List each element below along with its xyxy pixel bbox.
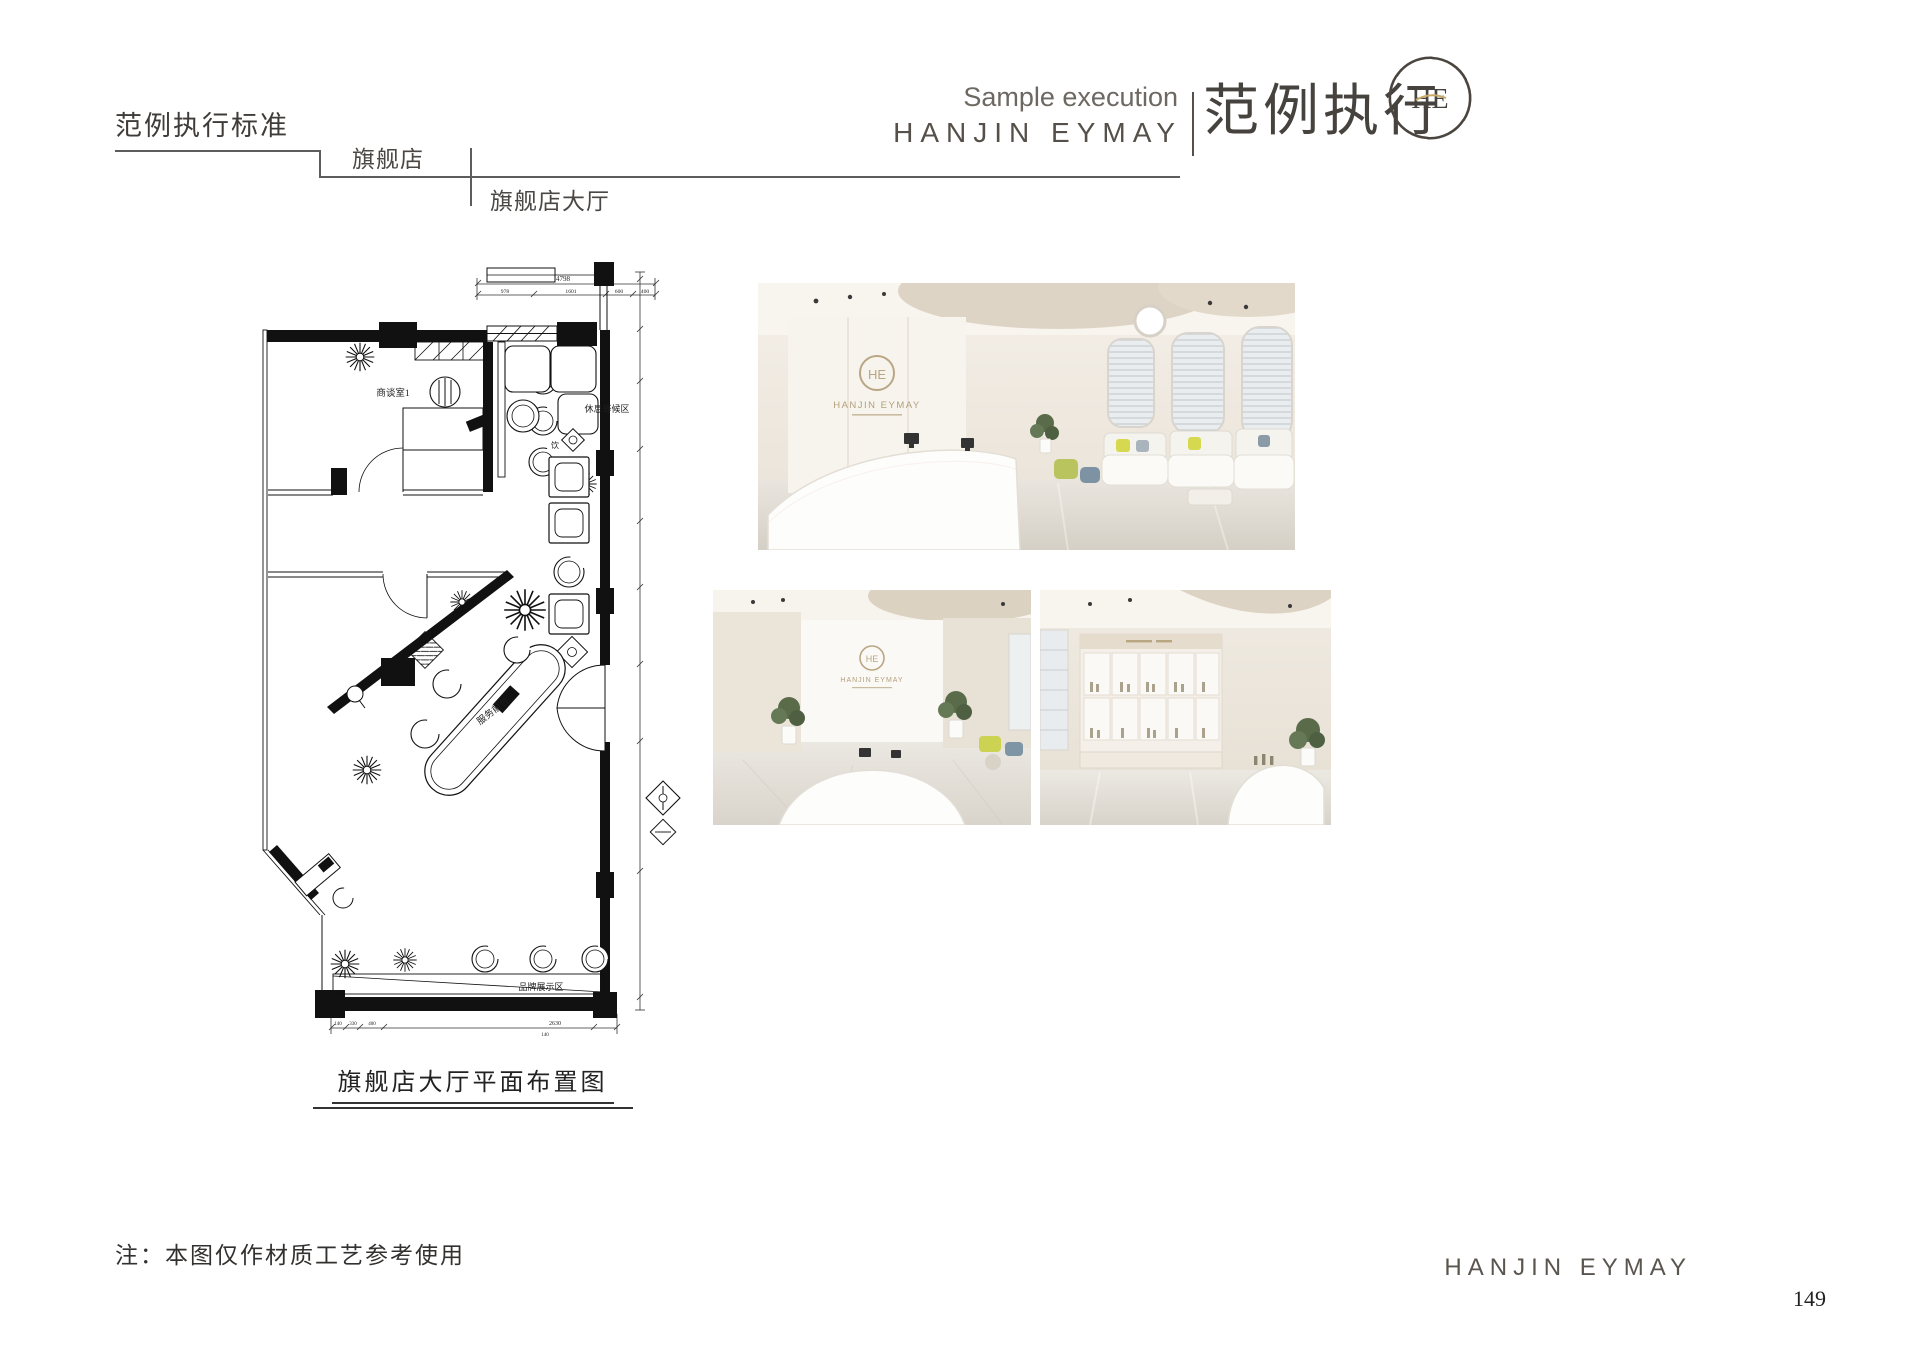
- service-desk: 服务前台: [353, 589, 575, 805]
- plan-caption-underline: [313, 1107, 633, 1109]
- breadcrumb-divider: [470, 148, 472, 206]
- footer-brand: HANJIN EYMAY: [1444, 1254, 1692, 1282]
- page-number: 149: [1793, 1286, 1826, 1312]
- dim-top-seg3: 600: [615, 289, 624, 295]
- label-meeting-room: 商谈室1: [376, 387, 410, 399]
- plant-icon: [346, 343, 375, 372]
- label-drink: 饮: [551, 440, 559, 450]
- plan-caption-text: 旗舰店大厅平面布置图: [332, 1062, 614, 1104]
- display-seats: [549, 457, 589, 668]
- sofa-row: [1102, 429, 1294, 489]
- brand-wordmark: HANJIN EYMAY: [893, 117, 1182, 149]
- footer-note: 注：本图仅作材质工艺参考使用: [115, 1236, 465, 1270]
- dim-bot-seg1: 140: [334, 1022, 342, 1027]
- floor-plan: 4798 978 1601 600 400 140 330 400 2630 1…: [255, 222, 690, 1042]
- pillow-yellow: [1116, 439, 1130, 452]
- breadcrumb-level1: 旗舰店: [352, 140, 424, 174]
- corner-desk: [295, 854, 359, 979]
- label-brand-display: 品牌展示区: [518, 981, 563, 992]
- dim-top-total: 4798: [556, 275, 571, 283]
- dim-top-seg4: 400: [641, 289, 650, 295]
- render-reception: HE HANJIN EYMAY: [713, 590, 1031, 825]
- dim-bot-seg2: 330: [349, 1022, 357, 1027]
- header-horizontal-rule: [319, 176, 1180, 178]
- dim-bot-seg3: 400: [368, 1022, 376, 1027]
- mid-partition: [268, 570, 514, 714]
- title-step-line: [319, 150, 321, 177]
- entrance-door: [557, 665, 605, 751]
- brand-display-band: 品牌展示区: [333, 946, 608, 994]
- label-waiting-area: 休息等候区: [584, 403, 629, 414]
- section-title: 范例执行标准: [115, 104, 289, 143]
- dimension-right: [635, 272, 645, 1010]
- dim-bot-seg5: 140: [541, 1033, 549, 1038]
- breadcrumb-level2: 旗舰店大厅: [490, 182, 610, 216]
- meeting-room: 商谈室1: [268, 342, 493, 495]
- legend-symbols: [646, 781, 680, 845]
- render-display: [1040, 590, 1331, 825]
- page: 范例执行标准 旗舰店 旗舰店大厅 Sample execution HANJIN…: [0, 0, 1920, 1357]
- ceiling-light: [1135, 306, 1165, 336]
- pillow-gray: [1136, 440, 1149, 452]
- render1-logo-text: HANJIN EYMAY: [833, 400, 921, 411]
- render2-logo-text: HANJIN EYMAY: [840, 677, 903, 684]
- plan-caption: 旗舰店大厅平面布置图: [255, 1062, 690, 1109]
- display-shelves: [1080, 634, 1222, 768]
- render2-window: [1009, 634, 1031, 730]
- brand-logo-icon: HE: [1380, 48, 1480, 148]
- windows: [1108, 327, 1292, 439]
- sample-execution-en: Sample execution: [963, 82, 1178, 113]
- dim-top-seg1: 978: [501, 289, 510, 295]
- coffee-table: [1188, 489, 1232, 505]
- render-main-hall: HE HANJIN EYMAY: [758, 283, 1295, 550]
- dim-top-seg2: 1601: [565, 289, 576, 295]
- render1-logo-monogram: HE: [868, 367, 886, 382]
- dim-bot-seg4: 2630: [549, 1021, 561, 1027]
- title-underline: [115, 150, 320, 152]
- render2-logo-monogram: HE: [866, 654, 879, 664]
- brand-divider: [1192, 92, 1194, 156]
